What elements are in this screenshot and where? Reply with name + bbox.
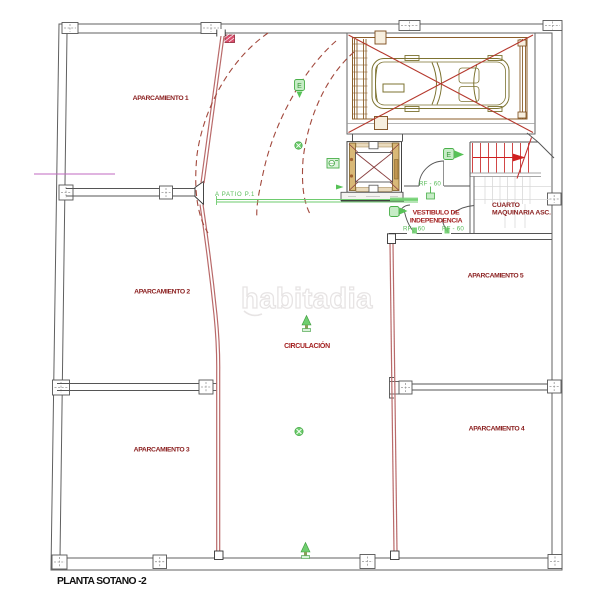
svg-text:MAQUINARIA ASC.: MAQUINARIA ASC. bbox=[492, 210, 551, 217]
svg-text:VESTIBULO DE: VESTIBULO DE bbox=[413, 210, 460, 217]
svg-text:INDEPENDENCIA: INDEPENDENCIA bbox=[410, 218, 463, 225]
svg-text:PLANTA SOTANO -2: PLANTA SOTANO -2 bbox=[57, 576, 147, 587]
svg-text:APARCAMIENTO 1: APARCAMIENTO 1 bbox=[133, 95, 189, 102]
svg-text:RF - 60: RF - 60 bbox=[419, 181, 441, 188]
svg-text:APARCAMIENTO 2: APARCAMIENTO 2 bbox=[134, 289, 190, 296]
svg-text:RF - 60: RF - 60 bbox=[403, 226, 425, 233]
svg-text:APARCAMIENTO 3: APARCAMIENTO 3 bbox=[134, 447, 190, 454]
svg-text:E: E bbox=[297, 83, 302, 90]
svg-text:habitadia: habitadia bbox=[241, 283, 373, 315]
svg-text:CUARTO: CUARTO bbox=[492, 202, 520, 209]
svg-text:APARCAMIENTO 4: APARCAMIENTO 4 bbox=[469, 426, 525, 433]
svg-text:RF - 60: RF - 60 bbox=[442, 226, 464, 233]
svg-text:CIRCULACIÓN: CIRCULACIÓN bbox=[284, 341, 330, 350]
svg-text:APARCAMIENTO 5: APARCAMIENTO 5 bbox=[468, 273, 524, 280]
svg-text:E: E bbox=[446, 152, 451, 159]
svg-text:A PATIO P.1: A PATIO P.1 bbox=[215, 192, 255, 198]
